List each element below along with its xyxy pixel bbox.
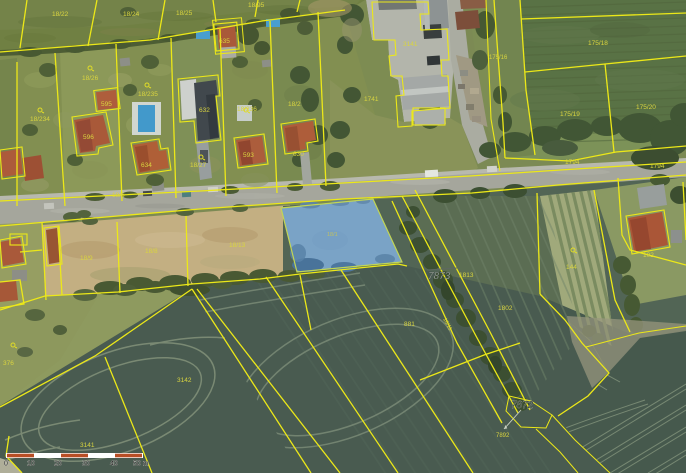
svg-text:10: 10 — [27, 461, 35, 468]
svg-text:30: 30 — [82, 461, 90, 468]
svg-text:20: 20 — [54, 461, 62, 468]
svg-text:0: 0 — [4, 461, 8, 468]
svg-text:40: 40 — [110, 461, 118, 468]
svg-text:50 m: 50 m — [133, 461, 149, 468]
